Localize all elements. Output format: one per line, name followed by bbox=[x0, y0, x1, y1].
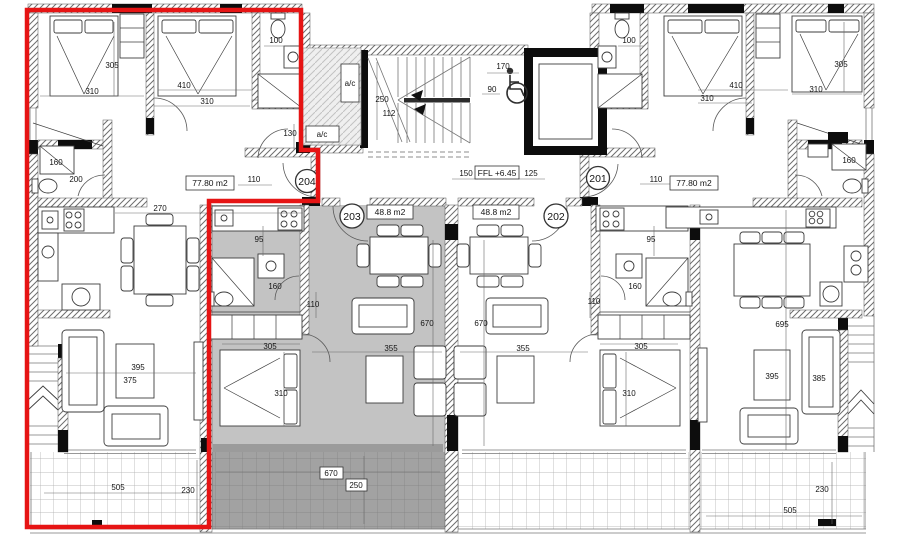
dim-201-table: 395 bbox=[765, 372, 779, 381]
dim-204-balcony-len: 505 bbox=[111, 483, 125, 492]
armchair bbox=[740, 408, 798, 444]
unit-number-202: 202 bbox=[547, 211, 565, 223]
toilet-icon bbox=[271, 13, 285, 38]
sofa bbox=[104, 406, 168, 446]
elevator-shaft bbox=[524, 48, 608, 155]
sink-icon bbox=[808, 144, 828, 157]
dim-203-balcony-len: 670 bbox=[324, 469, 338, 478]
bed-201-2 bbox=[792, 16, 862, 92]
balcony-201 bbox=[700, 452, 866, 529]
dim-201-living-len: 695 bbox=[775, 320, 789, 329]
bed-202 bbox=[600, 350, 680, 426]
dim-202-kitchen: 95 bbox=[647, 235, 656, 244]
dim-204-hall: 110 bbox=[248, 175, 261, 184]
unit-number-204: 204 bbox=[298, 176, 316, 188]
stair-handrail bbox=[404, 98, 470, 103]
dim-201-bed1-len: 410 bbox=[729, 81, 743, 90]
toilet-icon bbox=[663, 292, 692, 306]
dim-204-bed2-len: 410 bbox=[177, 81, 191, 90]
dim-204-wc: 100 bbox=[269, 36, 283, 45]
dim-204-bath: 200 bbox=[69, 175, 83, 184]
dining-201 bbox=[734, 232, 810, 308]
sink-icon bbox=[598, 46, 616, 68]
balcony-202 bbox=[458, 452, 690, 529]
dim-204-kitchen: 270 bbox=[153, 204, 167, 213]
dim-202-shower: 160 bbox=[628, 282, 642, 291]
armchair bbox=[414, 346, 446, 379]
dim-lobby-w1: 150 bbox=[459, 169, 473, 178]
dim-202-living-len: 670 bbox=[474, 319, 488, 328]
dim-201-hall: 110 bbox=[650, 175, 663, 184]
dim-203-living-len: 670 bbox=[420, 319, 434, 328]
railing-post bbox=[818, 519, 836, 526]
dim-203-bed-wid: 305 bbox=[263, 342, 277, 351]
area-201: 77.80 m2 bbox=[676, 178, 712, 188]
dim-202-living-wid: 355 bbox=[516, 344, 530, 353]
sofa bbox=[802, 330, 840, 414]
dim-204-bed1-len: 305 bbox=[105, 61, 119, 70]
ac-label: a/c bbox=[345, 79, 356, 88]
dim-203-living-wid: 355 bbox=[384, 344, 398, 353]
sofa bbox=[62, 330, 104, 412]
dim-204-living-wid: 375 bbox=[123, 376, 137, 385]
bed-204-2 bbox=[158, 16, 236, 96]
dim-201-balcony-len: 505 bbox=[783, 506, 797, 515]
dim-203-kitchen: 95 bbox=[255, 235, 264, 244]
armchair bbox=[454, 346, 486, 379]
wardrobe-202 bbox=[598, 315, 690, 339]
kitchen-203 bbox=[212, 206, 304, 231]
dim-201-bed2-len: 305 bbox=[834, 60, 848, 69]
wardrobe-203 bbox=[210, 315, 302, 339]
bed-203 bbox=[220, 350, 300, 426]
dim-201-sofa: 385 bbox=[812, 374, 826, 383]
tv-unit bbox=[194, 342, 203, 420]
elevator-cab bbox=[533, 57, 598, 146]
dim-204-bed1-wid: 310 bbox=[85, 87, 99, 96]
dim-lift-clear-d: 90 bbox=[488, 85, 497, 94]
dim-stair-run: 250 bbox=[375, 95, 389, 104]
dim-stair-width: 112 bbox=[383, 109, 396, 118]
dim-201-bed1-wid: 310 bbox=[700, 94, 714, 103]
wardrobe bbox=[756, 14, 780, 58]
unit-number-203: 203 bbox=[343, 211, 361, 223]
toilet-icon bbox=[843, 179, 868, 193]
dim-204-balcony-dep: 230 bbox=[181, 486, 195, 495]
dim-203-bed-len: 310 bbox=[274, 389, 288, 398]
ac-niche: a/c a/c bbox=[303, 48, 361, 145]
sofa bbox=[486, 298, 548, 334]
sofa bbox=[352, 298, 414, 334]
shower-icon bbox=[258, 74, 302, 108]
area-203: 48.8 m2 bbox=[375, 207, 406, 217]
dim-202-bed-wid: 305 bbox=[634, 342, 648, 351]
dim-204-bed2-wid: 310 bbox=[200, 97, 214, 106]
dim-201-bed2-wid: 310 bbox=[809, 85, 823, 94]
shower-icon bbox=[598, 74, 642, 108]
toilet-icon bbox=[208, 292, 233, 306]
floor-plan-drawing: a/c a/c bbox=[0, 0, 900, 539]
dim-202-hall: 110 bbox=[588, 297, 601, 306]
dim-201-shower: 160 bbox=[842, 156, 856, 165]
tv-unit bbox=[698, 348, 707, 422]
coffee-table bbox=[366, 356, 403, 403]
sink-icon bbox=[616, 254, 642, 278]
dim-lobby-w2: 125 bbox=[524, 169, 538, 178]
dim-203-shower: 160 bbox=[268, 282, 282, 291]
dim-204-shower: 160 bbox=[49, 158, 63, 167]
dim-204-niche: 130 bbox=[283, 129, 297, 138]
dim-201-balcony-dep: 230 bbox=[815, 485, 829, 494]
dim-lift-clear-w: 170 bbox=[496, 62, 510, 71]
dim-203-balcony-dep: 250 bbox=[349, 481, 363, 490]
balcony-203 bbox=[212, 452, 445, 529]
floor-plan-canvas: a/c a/c bbox=[0, 0, 900, 539]
dim-201-wc: 100 bbox=[622, 36, 636, 45]
armchair bbox=[454, 383, 486, 416]
toilet-icon bbox=[32, 179, 57, 193]
area-202: 48.8 m2 bbox=[481, 207, 512, 217]
armchair bbox=[414, 383, 446, 416]
unit-number-201: 201 bbox=[589, 173, 607, 185]
ffl-label: FFL +6.45 bbox=[478, 168, 517, 178]
bed-204-1 bbox=[50, 16, 118, 96]
toilet-icon bbox=[615, 13, 629, 38]
dim-203-hall: 110 bbox=[307, 300, 320, 309]
wardrobe bbox=[120, 14, 144, 58]
area-204: 77.80 m2 bbox=[192, 178, 228, 188]
ac-label: a/c bbox=[317, 130, 328, 139]
dim-204-living-len: 395 bbox=[131, 363, 145, 372]
dim-202-bed-len: 310 bbox=[622, 389, 636, 398]
sink-icon bbox=[258, 254, 284, 278]
